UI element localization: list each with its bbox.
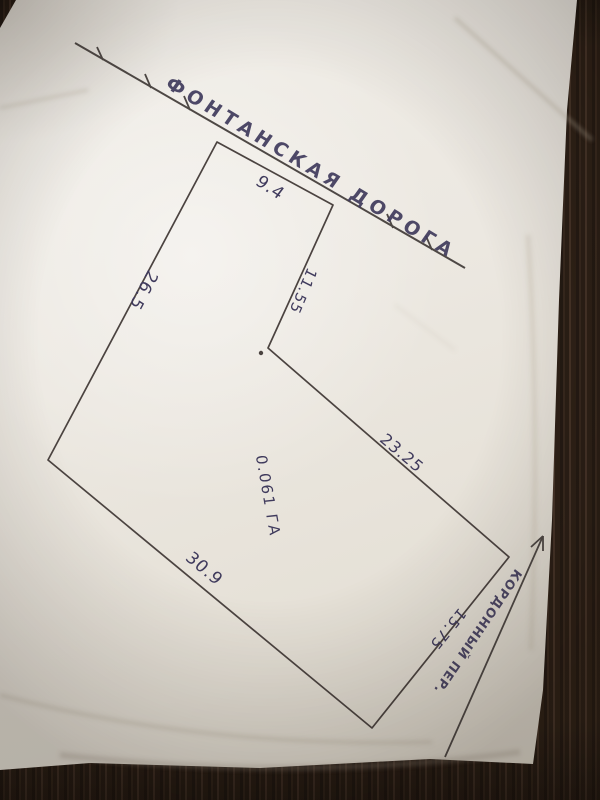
photo-scene: ФОНТАНСКАЯ ДОРОГА 9.4 11.55 26.5 23.25 0…	[0, 0, 600, 800]
paper-sheet	[0, 0, 600, 800]
